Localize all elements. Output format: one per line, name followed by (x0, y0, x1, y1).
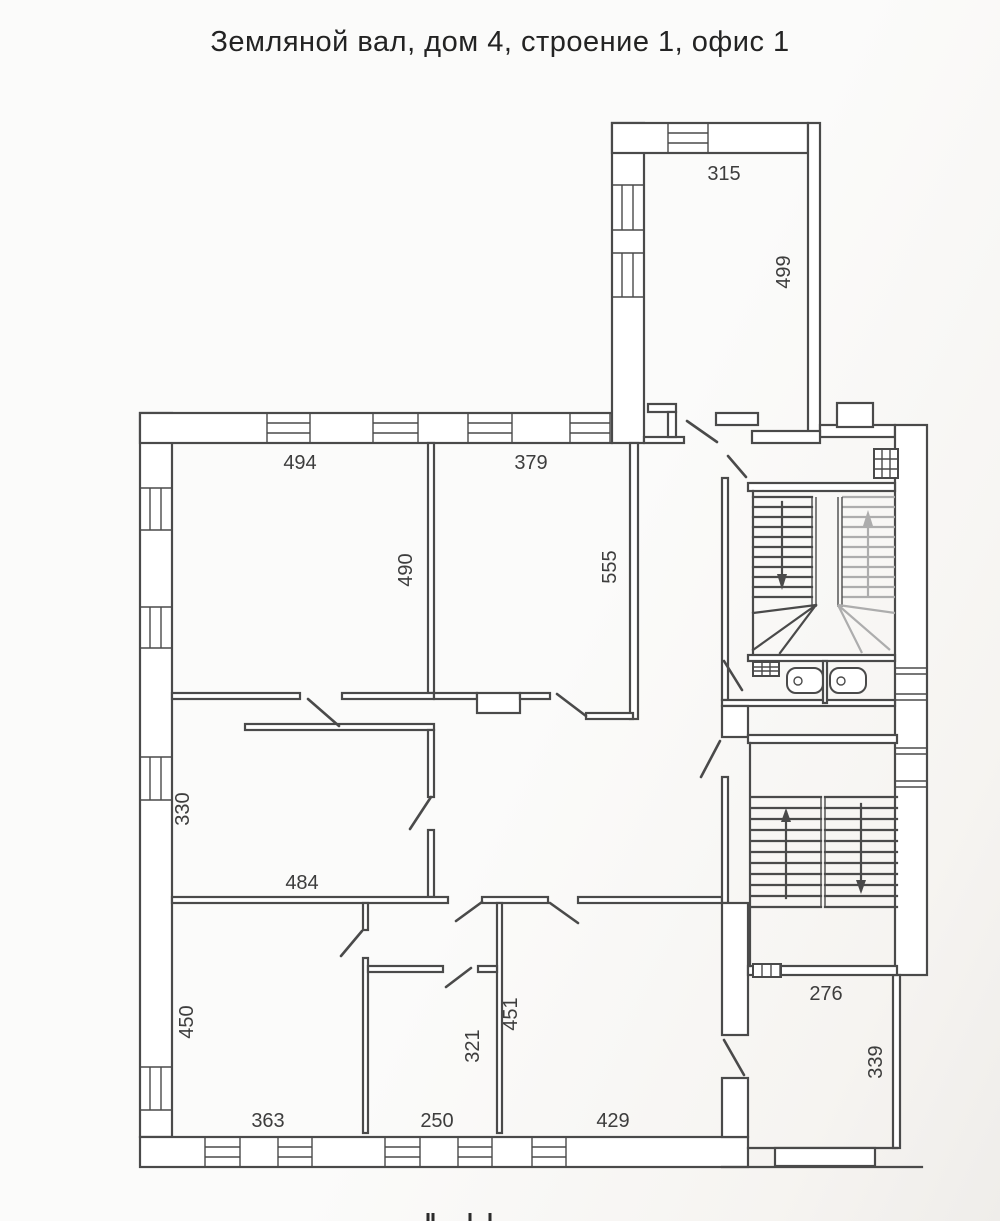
dimension-labels: 494 379 490 555 315 499 330 484 450 363 … (172, 163, 887, 1132)
dim-484: 484 (285, 872, 318, 894)
stair-up-arrow-icon (781, 808, 791, 822)
dim-330: 330 (172, 792, 194, 825)
wc-area (753, 661, 866, 703)
vent-shaft-icon (874, 449, 898, 478)
dim-450: 450 (176, 1005, 198, 1038)
floor-plan-sheet: Земляной вал, дом 4, строение 1, офис 1 (0, 0, 1000, 1221)
staircase-lower (750, 743, 897, 966)
dim-250: 250 (420, 1110, 453, 1132)
dim-555: 555 (599, 550, 621, 583)
dim-429: 429 (596, 1110, 629, 1132)
dim-339: 339 (865, 1045, 887, 1078)
dim-494: 494 (283, 452, 316, 474)
staircase-upper (753, 491, 895, 653)
dim-379: 379 (514, 452, 547, 474)
dim-315: 315 (707, 163, 740, 185)
dim-451: 451 (500, 997, 522, 1030)
outer-walls (140, 123, 927, 1167)
dim-363: 363 (251, 1110, 284, 1132)
door-leaves (308, 421, 746, 1075)
dim-276: 276 (809, 983, 842, 1005)
interior-walls (172, 404, 897, 1137)
radiator-icon (753, 964, 781, 977)
sink-icon (753, 662, 779, 676)
dim-499: 499 (773, 255, 795, 288)
dim-321: 321 (462, 1029, 484, 1062)
stair-down-arrow-icon (856, 880, 866, 894)
toilet-icon (787, 668, 823, 693)
floor-plan-svg: 494 379 490 555 315 499 330 484 450 363 … (0, 0, 1000, 1221)
toilet-icon (830, 668, 866, 693)
dim-490: 490 (395, 553, 417, 586)
cropped-text-artifact (428, 1213, 490, 1221)
